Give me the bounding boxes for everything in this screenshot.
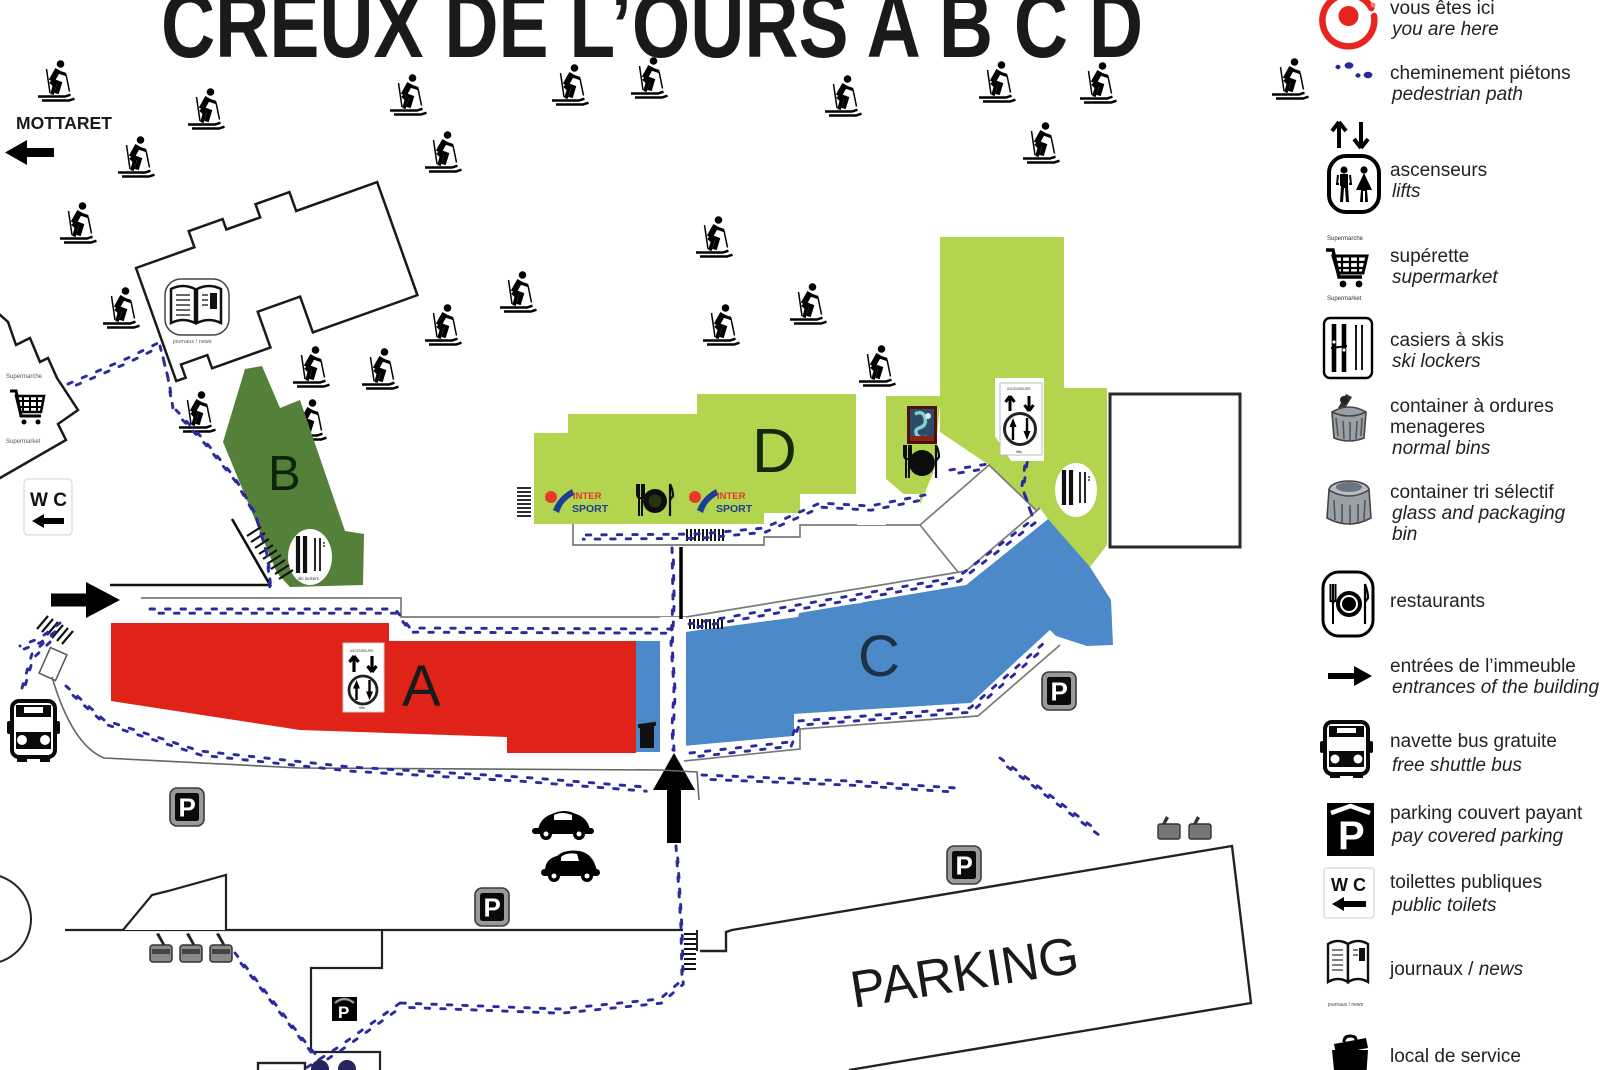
svg-text:ski lockers: ski lockers <box>298 576 320 581</box>
svg-text:supermarket: supermarket <box>1392 267 1498 288</box>
svg-text:restaurants: restaurants <box>1390 591 1485 612</box>
svg-text:ASCENSEURS: ASCENSEURS <box>1007 387 1031 391</box>
svg-text:public toilets: public toilets <box>1391 895 1497 916</box>
svg-text:menageres: menageres <box>1390 417 1485 438</box>
svg-text:SPORT: SPORT <box>716 503 753 515</box>
svg-text:ascenseurs: ascenseurs <box>1390 160 1487 181</box>
svg-text:C: C <box>858 624 900 689</box>
svg-text:Supermarche: Supermarche <box>1327 236 1364 242</box>
svg-text:entrances of the building: entrances of the building <box>1392 677 1599 698</box>
svg-text:free shuttle bus: free shuttle bus <box>1392 755 1522 776</box>
svg-text:cheminement piétons: cheminement piétons <box>1390 63 1571 84</box>
svg-text:you are here: you are here <box>1390 19 1499 40</box>
svg-text:D: D <box>752 417 797 486</box>
svg-text:navette bus gratuite: navette bus gratuite <box>1390 731 1557 752</box>
svg-text:vous êtes ici: vous êtes ici <box>1390 0 1495 19</box>
svg-text:supérette: supérette <box>1390 246 1469 267</box>
svg-text:glass and packaging: glass and packaging <box>1392 503 1566 524</box>
svg-text:journaux / news: journaux / news <box>1389 959 1524 980</box>
svg-text:journaux / news: journaux / news <box>1327 1002 1364 1008</box>
svg-text:local de service: local de service <box>1390 1046 1521 1067</box>
svg-text:bin: bin <box>1392 524 1417 545</box>
svg-text:ski lockers: ski lockers <box>1392 351 1481 372</box>
svg-text:journaux / news: journaux / news <box>172 339 212 345</box>
svg-text:MOTTARET: MOTTARET <box>16 113 112 133</box>
svg-text:container tri sélectif: container tri sélectif <box>1390 482 1554 503</box>
svg-text:CREUX DE L’OURS A B C D: CREUX DE L’OURS A B C D <box>161 0 1143 77</box>
svg-text:lifts: lifts <box>1392 181 1421 202</box>
svg-text:SPORT: SPORT <box>572 503 609 515</box>
svg-text:entrées de l’immeuble: entrées de l’immeuble <box>1390 656 1576 677</box>
svg-text:lifts: lifts <box>359 705 365 710</box>
svg-text:A: A <box>402 654 441 719</box>
svg-text:container à ordures: container à ordures <box>1390 396 1554 417</box>
svg-text:W C: W C <box>1331 875 1366 895</box>
svg-text:Supermarket: Supermarket <box>6 439 41 445</box>
svg-text:pedestrian path: pedestrian path <box>1391 84 1523 105</box>
svg-text:parking couvert payant: parking couvert payant <box>1390 803 1583 824</box>
svg-text:INTER: INTER <box>573 491 602 502</box>
svg-text:INTER: INTER <box>717 491 746 502</box>
svg-text:lifts: lifts <box>1016 449 1022 454</box>
svg-text:P: P <box>1338 814 1365 858</box>
svg-text:normal bins: normal bins <box>1392 438 1491 459</box>
svg-text:Supermarket: Supermarket <box>1327 296 1362 302</box>
svg-text:B: B <box>268 447 301 501</box>
svg-text:P: P <box>338 1003 349 1022</box>
svg-text:toilettes publiques: toilettes publiques <box>1390 872 1542 893</box>
svg-text:W C: W C <box>30 490 67 511</box>
svg-text:pay covered parking: pay covered parking <box>1391 826 1564 847</box>
svg-text:casiers à skis: casiers à skis <box>1390 330 1504 351</box>
svg-text:Supermarche: Supermarche <box>6 374 43 380</box>
svg-text:ASCENSEURS: ASCENSEURS <box>350 649 374 653</box>
